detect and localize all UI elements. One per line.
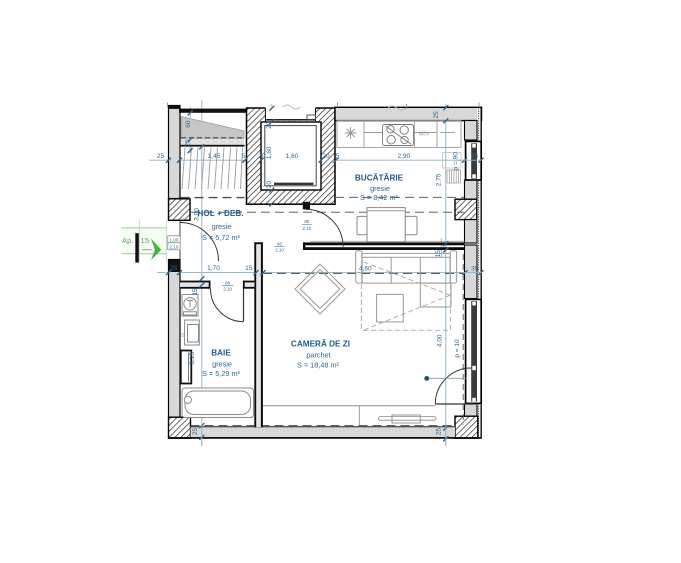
svg-text:25: 25 [436,428,443,436]
svg-text:25: 25 [192,428,199,436]
svg-text:2,90: 2,90 [397,153,410,160]
svg-text:p = 90: p = 90 [453,152,460,171]
svg-text:1,60: 1,60 [286,153,299,160]
svg-text:90: 90 [277,242,282,247]
svg-text:80: 80 [225,281,230,286]
svg-text:20: 20 [322,153,330,160]
svg-text:1,45: 1,45 [208,153,221,160]
svg-text:p = 10: p = 10 [454,339,461,358]
svg-text:2,75: 2,75 [435,173,442,186]
svg-text:M5V: M5V [419,132,430,138]
svg-text:Ap.: Ap. [122,236,133,245]
svg-text:BUCĂTĂRIE: BUCĂTĂRIE [355,173,404,183]
svg-text:gresie: gresie [212,359,232,368]
svg-text:5: 5 [336,153,340,160]
svg-text:20: 20 [266,121,273,129]
svg-text:20: 20 [266,181,273,189]
svg-text:15: 15 [141,236,149,245]
svg-text:20: 20 [258,153,266,160]
svg-text:gresie: gresie [212,222,232,231]
svg-text:2,10: 2,10 [170,244,179,249]
svg-text:S = 5,29 m²: S = 5,29 m² [202,369,240,378]
svg-text:CAMERĂ DE ZI: CAMERĂ DE ZI [291,338,350,348]
svg-text:15: 15 [192,288,199,296]
svg-text:80: 80 [304,219,309,224]
svg-text:60: 60 [185,120,192,128]
svg-text:S = 5,72 m²: S = 5,72 m² [202,233,240,242]
svg-text:2,10: 2,10 [275,248,284,253]
svg-text:15: 15 [435,250,442,258]
svg-text:S = 8,42 m²: S = 8,42 m² [360,193,398,202]
svg-text:2,10: 2,10 [223,287,232,292]
svg-text:60: 60 [180,332,185,337]
svg-text:BAIE: BAIE [211,348,231,357]
svg-text:1,60: 1,60 [266,146,273,159]
svg-text:1,70: 1,70 [207,265,220,272]
svg-text:35: 35 [471,266,479,273]
svg-text:25: 25 [157,153,165,160]
svg-text:25: 25 [170,265,178,272]
svg-text:S = 18,48 m²: S = 18,48 m² [297,360,340,369]
svg-text:5: 5 [242,153,246,160]
svg-text:25: 25 [433,111,440,119]
svg-text:gresie: gresie [370,184,390,193]
svg-text:35: 35 [471,153,479,160]
svg-text:2,10: 2,10 [303,226,312,231]
svg-text:25: 25 [185,139,192,147]
svg-text:parchet: parchet [306,351,330,360]
svg-text:4,00: 4,00 [436,334,443,347]
svg-text:4,60: 4,60 [359,266,372,273]
svg-text:3,15: 3,15 [189,352,196,365]
svg-text:1,00: 1,00 [170,237,179,242]
svg-text:HOL + DEB.: HOL + DEB. [197,209,243,218]
svg-text:15: 15 [245,265,253,272]
